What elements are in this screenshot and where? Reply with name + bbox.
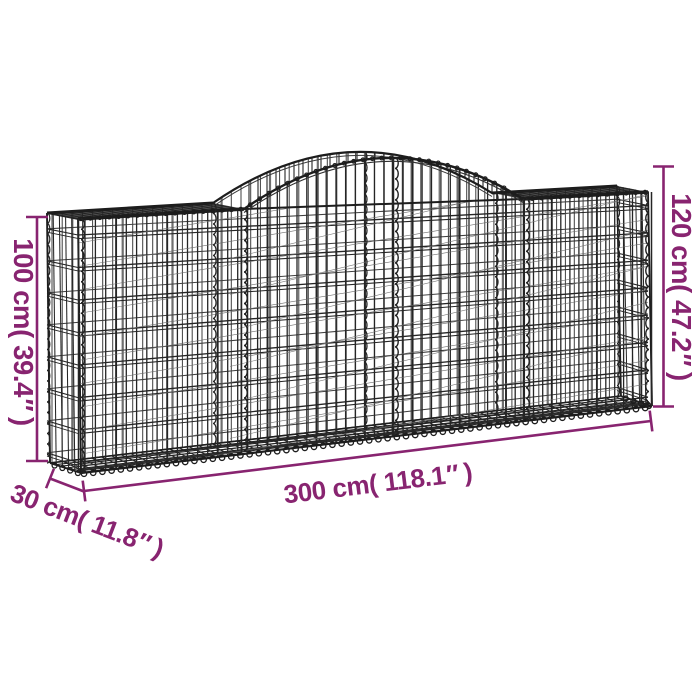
svg-text:100 cm( 39.4″ ): 100 cm( 39.4″ ) bbox=[8, 238, 39, 426]
svg-text:120 cm( 47.2″ ): 120 cm( 47.2″ ) bbox=[666, 193, 697, 381]
